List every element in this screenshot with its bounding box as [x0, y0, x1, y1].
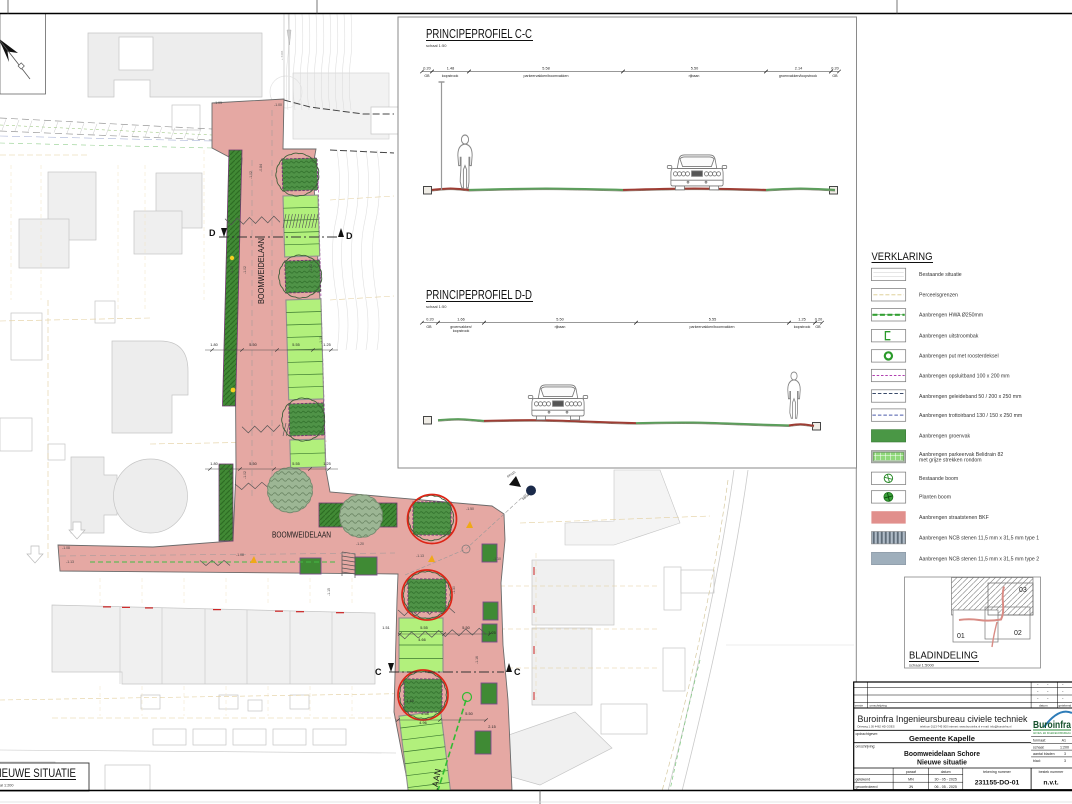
svg-text:BOOMWEIDELAAN: BOOMWEIDELAAN: [272, 530, 331, 540]
svg-text:schaal 1:50: schaal 1:50: [426, 43, 447, 48]
svg-text:5.50: 5.50: [249, 343, 256, 347]
svg-text:datum: datum: [1039, 703, 1048, 707]
svg-text:Gemeente Kapelle: Gemeente Kapelle: [909, 734, 975, 743]
svg-text:5.50: 5.50: [465, 712, 472, 716]
svg-text:NIEUWE SITUATIE: NIEUWE SITUATIE: [0, 766, 76, 780]
svg-text:5.58: 5.58: [542, 66, 549, 70]
svg-text:-0.97: -0.97: [229, 471, 233, 479]
svg-text:-1.13: -1.13: [230, 266, 234, 274]
svg-text:Aanbrengen put met roosterdeks: Aanbrengen put met roosterdeksel: [919, 354, 999, 360]
svg-text:-1.08: -1.08: [62, 546, 70, 550]
svg-text:Aanbrengen uitstroombak: Aanbrengen uitstroombak: [919, 334, 979, 340]
svg-text:parkeervakken/boomvakken: parkeervakken/boomvakken: [524, 74, 569, 78]
svg-text:-1.13: -1.13: [66, 560, 74, 564]
svg-text:-1.02: -1.02: [243, 266, 247, 274]
svg-text:met grijze strekken rondom: met grijze strekken rondom: [919, 458, 982, 464]
svg-text:1.48: 1.48: [447, 66, 454, 70]
svg-text:Aanbrengen NCB stenen 11,5 mm: Aanbrengen NCB stenen 11,5 mm x 31,5 mm …: [919, 556, 1039, 562]
svg-text:1:200: 1:200: [1060, 745, 1069, 749]
svg-text:-1.13: -1.13: [416, 554, 424, 558]
svg-text:omschrijving: omschrijving: [870, 703, 887, 707]
svg-text:0.20: 0.20: [831, 66, 838, 70]
svg-text:1.51: 1.51: [382, 626, 389, 630]
svg-text:5.55: 5.55: [292, 462, 299, 466]
svg-text:GB: GB: [815, 325, 821, 329]
svg-text:PRINCIPEPROFIEL D-D: PRINCIPEPROFIEL D-D: [426, 288, 532, 302]
svg-text:-1.16: -1.16: [475, 656, 479, 664]
svg-text:-1.00: -1.00: [274, 103, 282, 107]
svg-text:schaal 1:200: schaal 1:200: [0, 784, 14, 788]
svg-text:3: 3: [1064, 759, 1066, 763]
svg-text:getekend: getekend: [856, 778, 871, 782]
svg-text:1.25: 1.25: [798, 318, 805, 322]
svg-text:Aanbrengen NCB stenen 11,5 mm: Aanbrengen NCB stenen 11,5 mm x 31,5 mm …: [919, 536, 1039, 542]
svg-text:-1.02: -1.02: [249, 171, 253, 179]
svg-text:schaal:: schaal:: [1033, 745, 1044, 749]
svg-text:Perceelsgrenzen: Perceelsgrenzen: [919, 293, 958, 299]
svg-text:C: C: [514, 667, 521, 677]
svg-text:Aanbrengen geleideband 50 / 20: Aanbrengen geleideband 50 / 200 x 250 mm: [919, 394, 1021, 400]
svg-text:GB: GB: [832, 74, 838, 78]
svg-text:5.50: 5.50: [249, 462, 256, 466]
svg-text:n.v.t.: n.v.t.: [1043, 780, 1058, 787]
svg-text:4.96: 4.96: [419, 721, 426, 725]
svg-text:datum: datum: [941, 770, 951, 774]
svg-text:-1.20: -1.20: [356, 542, 364, 546]
svg-text:0.20: 0.20: [423, 66, 430, 70]
svg-text:1.25: 1.25: [323, 343, 330, 347]
svg-text:-1.10: -1.10: [319, 336, 323, 344]
svg-text:0.20: 0.20: [815, 318, 822, 322]
svg-text:+ 6406: + 6406: [280, 50, 284, 60]
svg-text:5.55: 5.55: [292, 343, 299, 347]
svg-text:Planten boom: Planten boom: [919, 495, 951, 501]
svg-text:MN: MN: [908, 778, 914, 782]
svg-text:5.50: 5.50: [462, 626, 469, 630]
svg-text:D: D: [346, 231, 353, 241]
svg-text:GB: GB: [426, 325, 432, 329]
svg-text:-1.15: -1.15: [327, 588, 331, 596]
svg-text:PRINCIPEPROFIEL C-C: PRINCIPEPROFIEL C-C: [426, 27, 532, 41]
svg-text:-1.03: -1.03: [214, 101, 222, 105]
svg-text:-1.30: -1.30: [452, 586, 456, 594]
svg-text:1.80: 1.80: [210, 462, 217, 466]
svg-text:BOOMWEIDELAAN: BOOMWEIDELAAN: [256, 238, 266, 304]
svg-text:aantal bladen: aantal bladen: [1033, 752, 1055, 756]
svg-text:Bestaande situatie: Bestaande situatie: [919, 272, 962, 278]
svg-text:5.55: 5.55: [709, 318, 716, 322]
svg-text:A1: A1: [1062, 739, 1066, 743]
svg-text:-1.50: -1.50: [466, 507, 474, 511]
svg-text:loopstrook: loopstrook: [794, 325, 811, 329]
svg-text:rijbaan: rijbaan: [689, 74, 700, 78]
svg-text:Aanbrengen opsluitband 100 x 2: Aanbrengen opsluitband 100 x 200 mm: [919, 373, 1010, 379]
svg-text:Aanbrengen trottoirband 130 /: Aanbrengen trottoirband 130 / 150 x 250 …: [919, 413, 1022, 419]
svg-text:opdrachtgever:: opdrachtgever:: [856, 732, 879, 736]
svg-text:gecontroleerd: gecontroleerd: [856, 785, 878, 789]
svg-text:omschrijving:: omschrijving:: [856, 745, 876, 749]
svg-text:Aanbrengen HWA Ø250mm: Aanbrengen HWA Ø250mm: [919, 313, 983, 319]
svg-text:Buroinfra Ingenieursbureau civ: Buroinfra Ingenieursbureau civiele techn…: [858, 714, 1028, 725]
svg-text:GB: GB: [424, 74, 430, 78]
svg-text:Aanbrengen groenvak: Aanbrengen groenvak: [919, 434, 970, 440]
svg-text:02: 02: [1014, 630, 1022, 637]
svg-text:paraaf: paraaf: [906, 770, 916, 774]
svg-text:groenvakken/loopstrook: groenvakken/loopstrook: [779, 74, 817, 78]
svg-text:3: 3: [1064, 752, 1066, 756]
svg-text:Drieweg 1.05 4462 HD GOES: Drieweg 1.05 4462 HD GOES: [858, 725, 895, 729]
svg-text:5.55: 5.55: [420, 626, 427, 630]
svg-text:D: D: [209, 228, 216, 238]
svg-text:Buroinfra: Buroinfra: [1033, 720, 1071, 731]
svg-text:formaat:: formaat:: [1033, 739, 1046, 743]
svg-text:1.45: 1.45: [406, 699, 413, 703]
svg-text:1.25: 1.25: [323, 462, 330, 466]
svg-text:5.58: 5.58: [421, 712, 428, 716]
svg-text:rijbaan: rijbaan: [555, 325, 566, 329]
svg-text:VERKLARING: VERKLARING: [872, 251, 933, 263]
svg-text:parkeervakken/boomvakken: parkeervakken/boomvakken: [690, 325, 735, 329]
svg-text:loopstrook: loopstrook: [453, 329, 470, 333]
svg-text:schaal 1:50: schaal 1:50: [426, 304, 447, 309]
svg-text:telefoon 0113-745 000 interne: telefoon 0113-745 000 internet: www.buro…: [920, 725, 1012, 729]
svg-text:5.50: 5.50: [556, 318, 563, 322]
svg-text:2.15: 2.15: [488, 725, 495, 729]
svg-text:30 - 05 - 2025: 30 - 05 - 2025: [935, 778, 957, 782]
svg-text:ADVIES- EN INGENIEURSBUREAU: ADVIES- EN INGENIEURSBUREAU: [1033, 731, 1071, 735]
svg-text:getekend: getekend: [1059, 703, 1072, 707]
svg-text:C: C: [375, 667, 382, 677]
svg-text:blad:: blad:: [1033, 759, 1041, 763]
svg-text:bestek nummer: bestek nummer: [1039, 770, 1065, 774]
svg-text:-1.02: -1.02: [243, 471, 247, 479]
svg-text:Nieuwe situatie: Nieuwe situatie: [917, 758, 967, 767]
svg-text:06 - 05 - 2025: 06 - 05 - 2025: [935, 785, 957, 789]
svg-text:-1.08: -1.08: [236, 553, 244, 557]
svg-text:1.80: 1.80: [210, 343, 217, 347]
svg-text:tekening nummer: tekening nummer: [983, 770, 1012, 774]
svg-text:-0.84: -0.84: [259, 164, 263, 172]
svg-text:Bestaande boom: Bestaande boom: [919, 476, 958, 482]
svg-text:BLADINDELING: BLADINDELING: [909, 651, 978, 662]
svg-text:schaal 1:5000: schaal 1:5000: [909, 663, 935, 668]
svg-text:2.14: 2.14: [795, 66, 802, 70]
svg-text:03: 03: [1019, 587, 1027, 594]
svg-text:01: 01: [957, 633, 965, 640]
svg-text:-1.02: -1.02: [309, 264, 313, 272]
svg-text:-1.10: -1.10: [493, 557, 501, 561]
svg-text:Aanbrengen straatstenen BKF: Aanbrengen straatstenen BKF: [919, 515, 989, 521]
svg-text:versie: versie: [855, 703, 864, 707]
svg-text:231155-DO-01: 231155-DO-01: [975, 780, 1020, 787]
svg-text:JN: JN: [909, 785, 914, 789]
svg-text:1.66: 1.66: [457, 318, 464, 322]
svg-text:5.50: 5.50: [691, 66, 698, 70]
svg-text:0.20: 0.20: [426, 318, 433, 322]
svg-text:loopstrook: loopstrook: [442, 74, 459, 78]
svg-text:4.66: 4.66: [418, 638, 425, 642]
